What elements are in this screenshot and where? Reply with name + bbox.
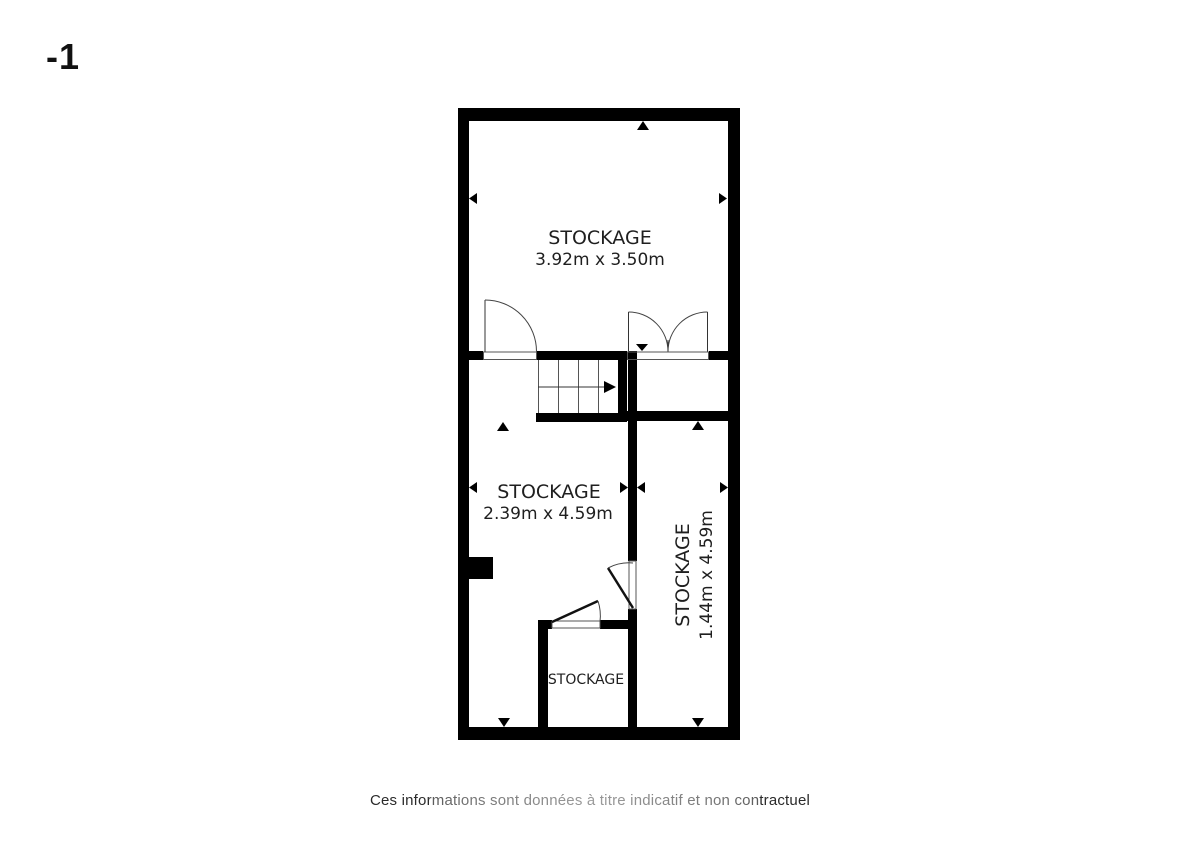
- dim-arrow-down-icon: [498, 718, 510, 727]
- door-swing-arc-right: [668, 312, 708, 352]
- wall-top: [458, 108, 740, 121]
- door-threshold: [552, 621, 600, 628]
- dim-arrow-left-icon: [637, 482, 645, 493]
- dim-arrow-up-icon: [497, 422, 509, 431]
- dim-arrow-right-icon: [620, 482, 628, 493]
- dim-arrow-right-icon: [719, 193, 727, 204]
- door-middle-right-wall: [608, 561, 636, 609]
- door-swing-arc: [598, 601, 600, 622]
- wall-stairs-bottom: [536, 413, 627, 422]
- door-single-top-left: [484, 300, 537, 360]
- pillar: [469, 557, 493, 579]
- floor-plan: STOCKAGE 3.92m x 3.50m STOCKAGE 2.39m x …: [0, 0, 1200, 849]
- wall-right: [728, 108, 740, 740]
- room-label-storage-middle: STOCKAGE: [497, 481, 600, 503]
- dim-arrow-down-icon: [636, 344, 648, 351]
- wall-small-room-top-right: [600, 620, 637, 629]
- door-swing-arc: [485, 300, 537, 352]
- disclaimer-text: Ces informations sont données à titre in…: [0, 792, 1180, 809]
- room-dims-storage-top: 3.92m x 3.50m: [535, 250, 665, 270]
- door-small-storage: [552, 601, 600, 628]
- dim-arrow-right-icon: [720, 482, 728, 493]
- dim-arrow-down-icon: [692, 718, 704, 727]
- wall-mid-left-stub: [458, 351, 483, 360]
- wall-stairs-top: [537, 351, 627, 360]
- room-label-storage-small: STOCKAGE: [548, 672, 624, 688]
- floor-plan-page: -1: [0, 0, 1200, 849]
- door-threshold: [484, 352, 537, 360]
- door-leaf: [552, 601, 598, 622]
- dim-arrow-left-icon: [469, 193, 477, 204]
- dim-arrow-up-icon: [637, 121, 649, 130]
- room-label-storage-right: STOCKAGE: [672, 523, 694, 626]
- room-label-storage-top: STOCKAGE: [548, 227, 651, 249]
- room-dims-storage-middle: 2.39m x 4.59m: [483, 504, 613, 524]
- wall-mid-right-stub: [709, 351, 728, 360]
- door-double-top-right: [628, 312, 709, 360]
- dim-arrow-left-icon: [469, 482, 477, 493]
- wall-stairs-right: [618, 351, 627, 422]
- room-dims-storage-right: 1.44m x 4.59m: [697, 510, 717, 640]
- wall-bottom: [458, 727, 740, 740]
- door-swing-arc-left: [629, 312, 669, 352]
- wall-small-room-top-left: [538, 620, 552, 629]
- dim-arrow-up-icon: [692, 421, 704, 430]
- wall-landing-bottom: [627, 411, 740, 421]
- stair-direction-arrow-icon: [604, 381, 616, 393]
- wall-small-room-left: [538, 620, 548, 727]
- wall-left: [458, 108, 469, 740]
- door-threshold: [628, 352, 709, 360]
- wall-middle-vertical-upper: [628, 351, 637, 561]
- staircase: [538, 360, 616, 413]
- room-label-storage-right-group: STOCKAGE 1.44m x 4.59m: [672, 510, 717, 640]
